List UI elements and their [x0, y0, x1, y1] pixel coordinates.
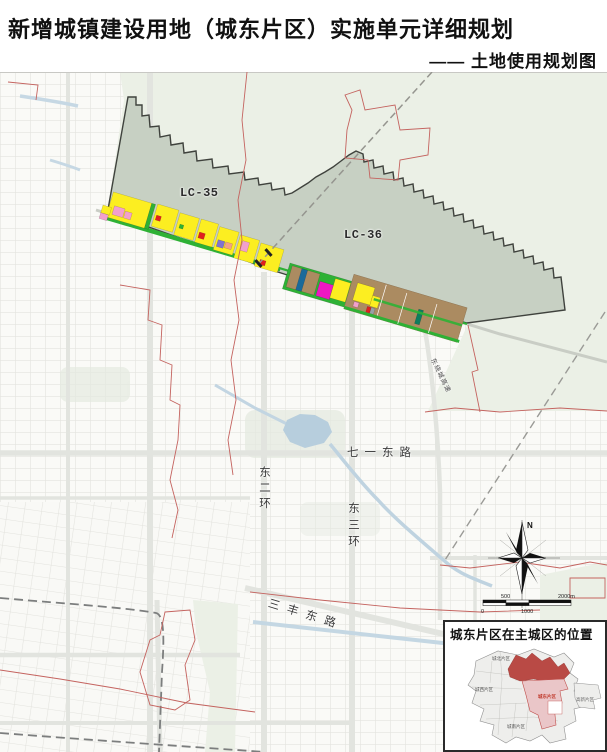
- planning-map-page: 新增城镇建设用地（城东片区）实施单元详细规划 —— 土地使用规划图: [0, 0, 607, 752]
- zone-label-lc35: LC-35: [180, 186, 219, 200]
- road-label-east-3rd-ring: 东三环: [345, 502, 361, 552]
- page-title: 新增城镇建设用地（城东片区）实施单元详细规划: [8, 12, 514, 44]
- compass-north-label: N: [527, 521, 533, 530]
- zone-label-lc36: LC-36: [344, 228, 383, 242]
- inset-label-north-district: 城北片区: [492, 655, 510, 662]
- page-subtitle: —— 土地使用规划图: [429, 47, 597, 72]
- road-label-qiyi-east: 七一东路: [347, 444, 417, 460]
- inset-title: 城东片区在主城区的位置: [450, 624, 605, 643]
- scale-2000: 2000m: [558, 594, 575, 600]
- inset-label-south-district: 城南片区: [507, 723, 525, 730]
- inset-map-svg: 城北片区 城西片区 城南片区 城东片区 高新片区: [446, 643, 604, 747]
- inset-locator-box: 城东片区在主城区的位置 城北片区 城西片区 城南片区 城东片区 高新片区: [443, 620, 607, 752]
- inset-hightech-area: [574, 683, 601, 709]
- scale-1000: 1000: [521, 609, 533, 615]
- main-map: N 500 2000m 0 1000 LC-35 LC-36 七一东路: [0, 72, 607, 752]
- scale-0: 0: [481, 609, 484, 615]
- scale-500: 500: [501, 594, 510, 600]
- inset-label-hightech-district: 高新片区: [576, 696, 594, 703]
- inset-label-east-district: 城东片区: [538, 693, 556, 700]
- road-label-east-2nd-ring: 东二环: [256, 466, 272, 513]
- inset-pink-notch: [548, 701, 562, 714]
- inset-label-west-district: 城西片区: [475, 686, 493, 693]
